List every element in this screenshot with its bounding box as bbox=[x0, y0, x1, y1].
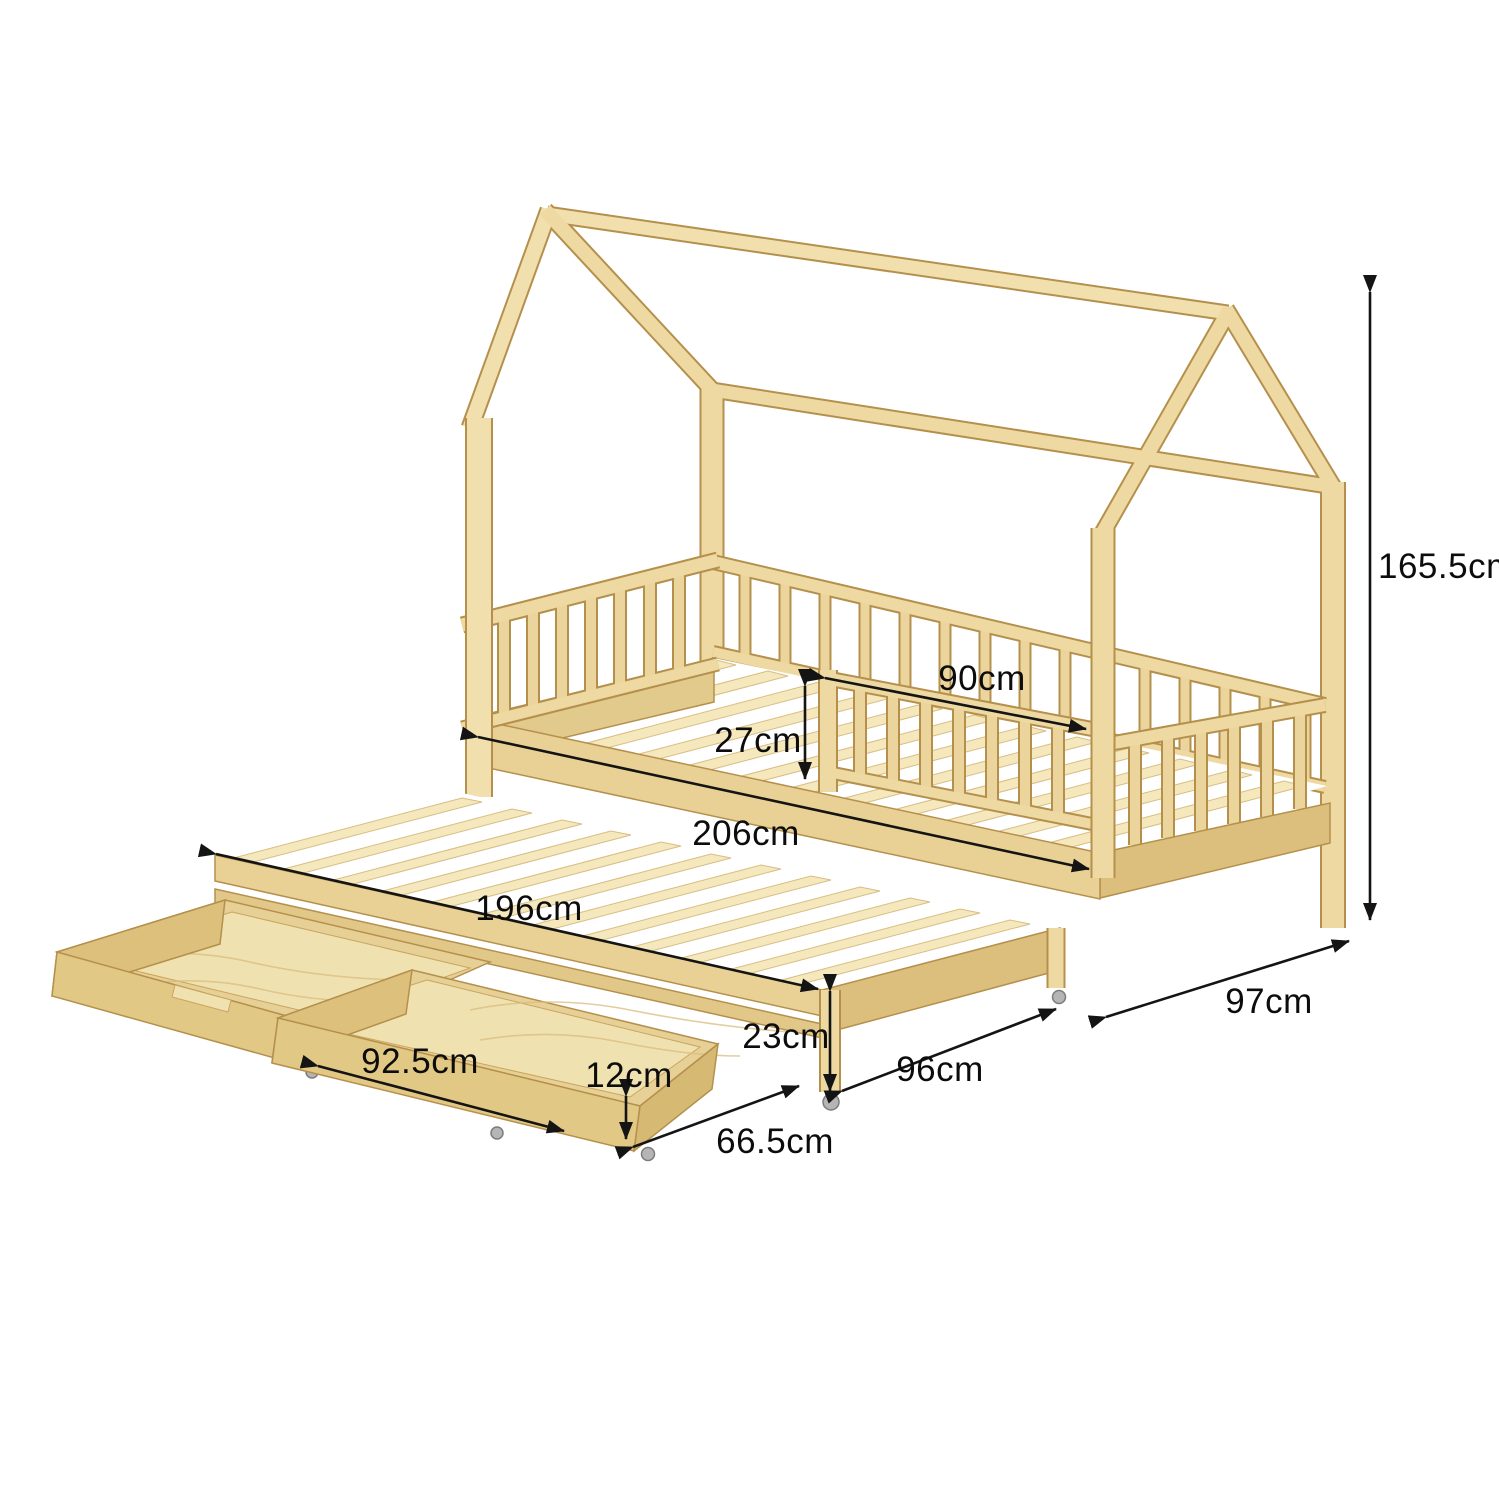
trundle-caster-front bbox=[823, 1094, 839, 1110]
foot-rail-top bbox=[1103, 705, 1325, 745]
drawer-caster bbox=[642, 1148, 655, 1161]
dim-label-bed-length: 206cm bbox=[692, 814, 800, 853]
dim-label-trundle-height: 23cm bbox=[742, 1017, 830, 1056]
house-bed-diagram-svg: 165.5cm 90cm 27cm 206cm 196cm 97cm 96cm … bbox=[0, 0, 1499, 1500]
dim-label-bed-width: 97cm bbox=[1225, 982, 1313, 1021]
rear-gable-left-rafter bbox=[1102, 309, 1230, 534]
dim-label-trundle-width: 96cm bbox=[896, 1050, 984, 1089]
dim-label-guardrail-length: 90cm bbox=[938, 659, 1026, 698]
dim-label-total-height: 165.5cm bbox=[1378, 547, 1499, 586]
ridge-beam bbox=[547, 214, 1228, 313]
dim-label-drawer-height: 12cm bbox=[585, 1056, 673, 1095]
dim-label-drawer-length: 92.5cm bbox=[361, 1042, 479, 1081]
front-gable-left-rafter bbox=[470, 210, 549, 428]
eave-beam bbox=[712, 390, 1334, 487]
dim-label-frame-height: 27cm bbox=[714, 721, 802, 760]
dim-label-trundle-length: 196cm bbox=[475, 889, 583, 928]
storage-drawer-right bbox=[272, 970, 790, 1161]
product-dimension-diagram: 165.5cm 90cm 27cm 206cm 196cm 97cm 96cm … bbox=[0, 0, 1499, 1500]
trundle-caster-rear bbox=[1053, 991, 1066, 1004]
rear-gable-right-rafter bbox=[1226, 309, 1334, 488]
drawer-caster bbox=[491, 1127, 503, 1139]
dim-label-drawer-width: 66.5cm bbox=[716, 1122, 834, 1161]
